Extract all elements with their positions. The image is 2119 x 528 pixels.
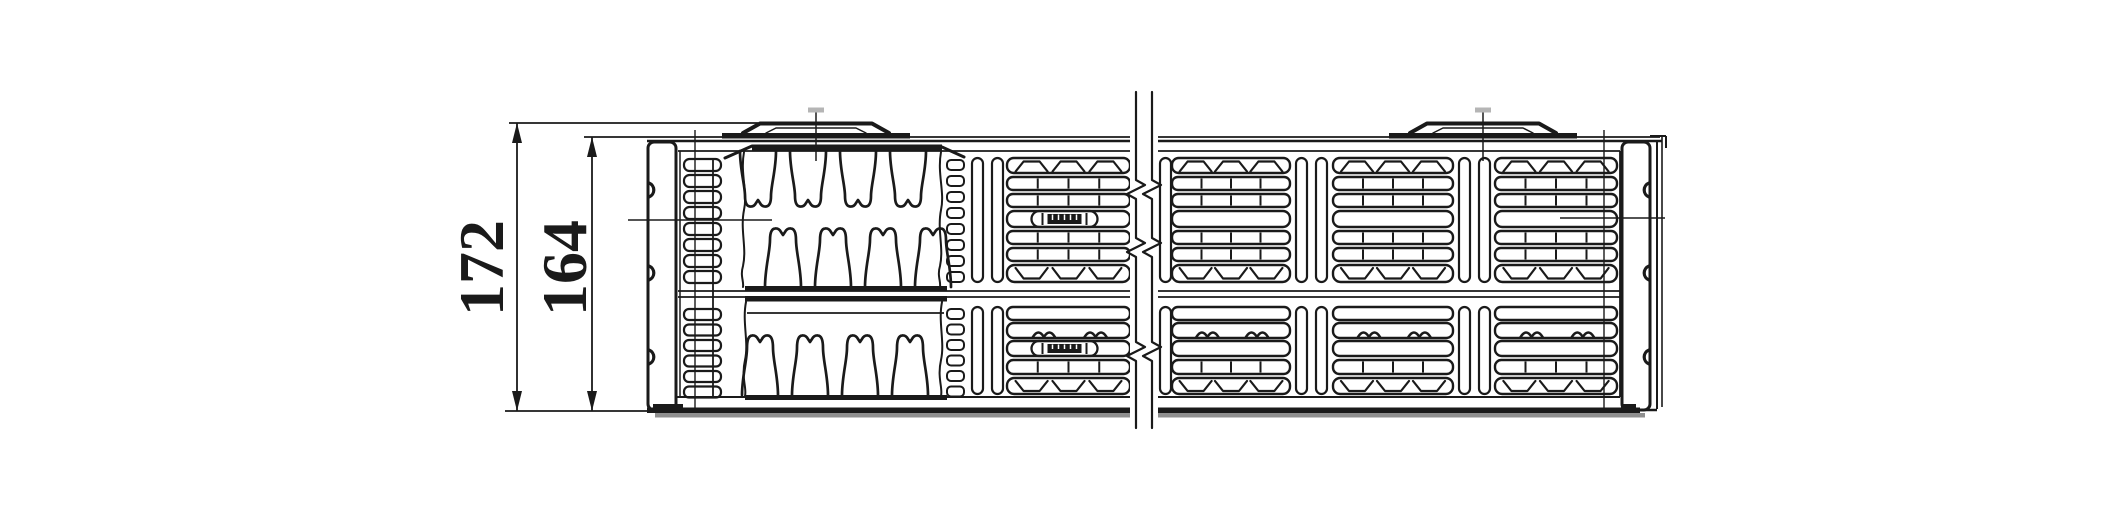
dimension-label-outer: 172: [446, 220, 517, 316]
radiator-section-drawing: 172 164: [0, 0, 2119, 528]
technical-drawing-page: 172 164: [0, 0, 2119, 528]
convector-fins-section: [725, 145, 964, 401]
break-gap: [1130, 86, 1158, 432]
top-grille: [972, 158, 1617, 394]
dimension-label-inner: 164: [529, 220, 600, 316]
